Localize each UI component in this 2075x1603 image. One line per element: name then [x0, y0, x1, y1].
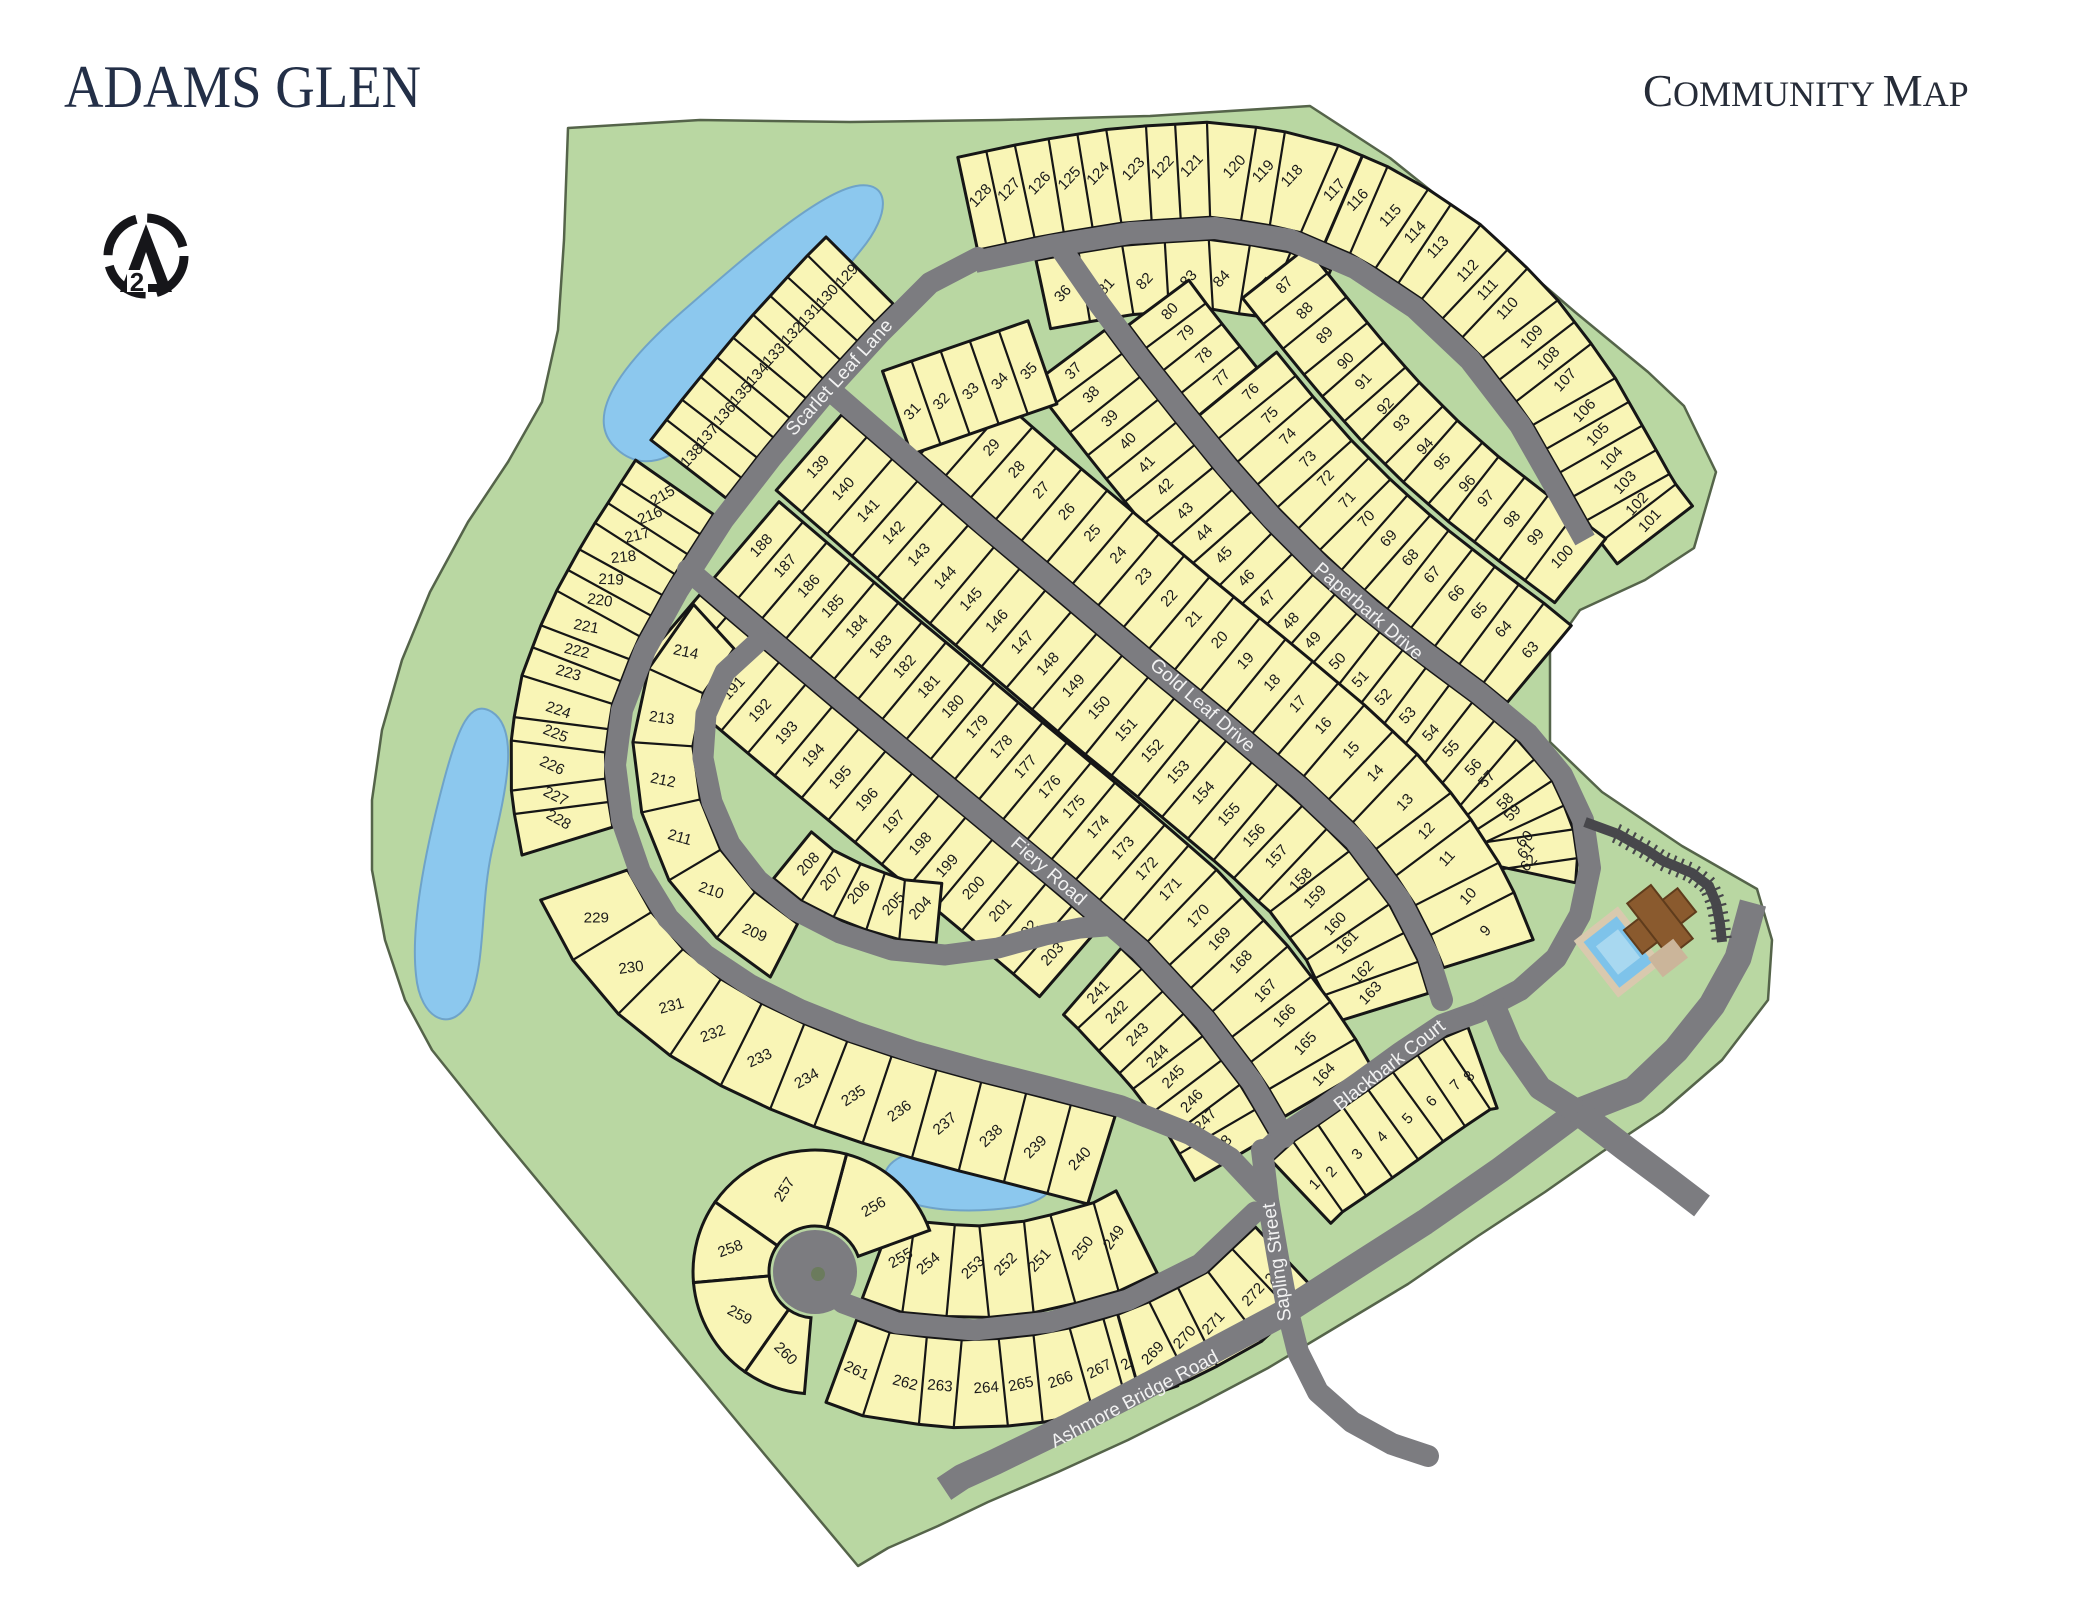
svg-text:COMMUNITY MAP: COMMUNITY MAP — [1643, 66, 1969, 116]
svg-text:220: 220 — [586, 590, 613, 610]
svg-text:229: 229 — [584, 910, 609, 927]
svg-text:ADAMS GLEN: ADAMS GLEN — [64, 54, 421, 120]
svg-text:2: 2 — [130, 267, 144, 297]
svg-text:230: 230 — [617, 958, 644, 978]
svg-text:263: 263 — [927, 1376, 954, 1395]
svg-text:219: 219 — [598, 571, 624, 589]
svg-text:264: 264 — [973, 1379, 999, 1398]
svg-text:213: 213 — [648, 708, 675, 728]
svg-text:218: 218 — [610, 548, 637, 568]
